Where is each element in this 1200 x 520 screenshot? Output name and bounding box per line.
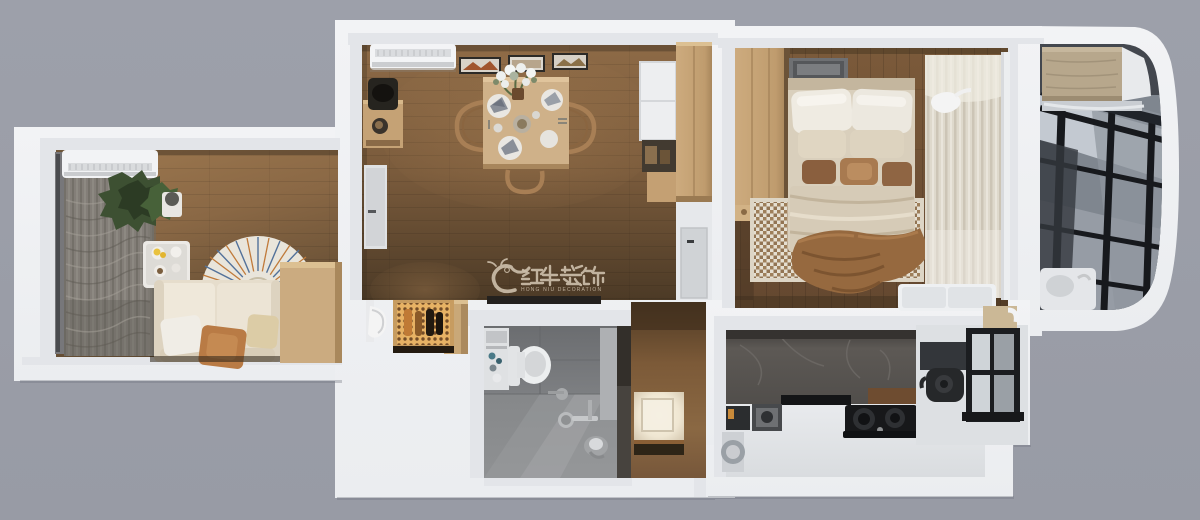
svg-text:HONG NIU DECORATION: HONG NIU DECORATION	[521, 287, 602, 293]
